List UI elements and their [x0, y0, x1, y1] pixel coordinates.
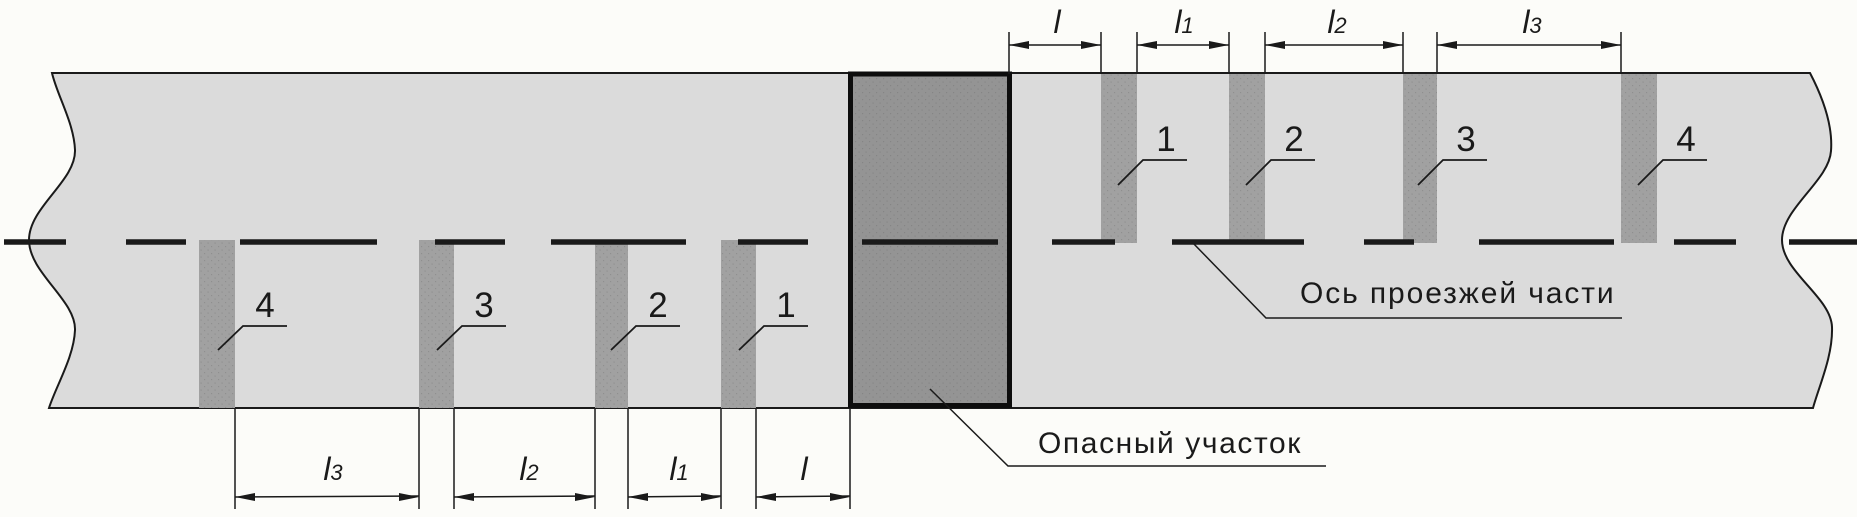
svg-text:1: 1: [776, 286, 795, 325]
svg-text:4: 4: [255, 286, 274, 325]
svg-text:2: 2: [648, 286, 667, 325]
svg-text:Ось проезжей части: Ось проезжей части: [1300, 277, 1616, 310]
svg-text:3: 3: [474, 286, 493, 325]
svg-text:1: 1: [1156, 120, 1175, 159]
svg-text:l: l: [800, 451, 808, 487]
svg-text:4: 4: [1676, 120, 1695, 159]
svg-text:Опасный участок: Опасный участок: [1038, 427, 1302, 460]
svg-text:2: 2: [1284, 120, 1303, 159]
svg-text:3: 3: [1456, 120, 1475, 159]
svg-text:l: l: [1053, 4, 1061, 40]
